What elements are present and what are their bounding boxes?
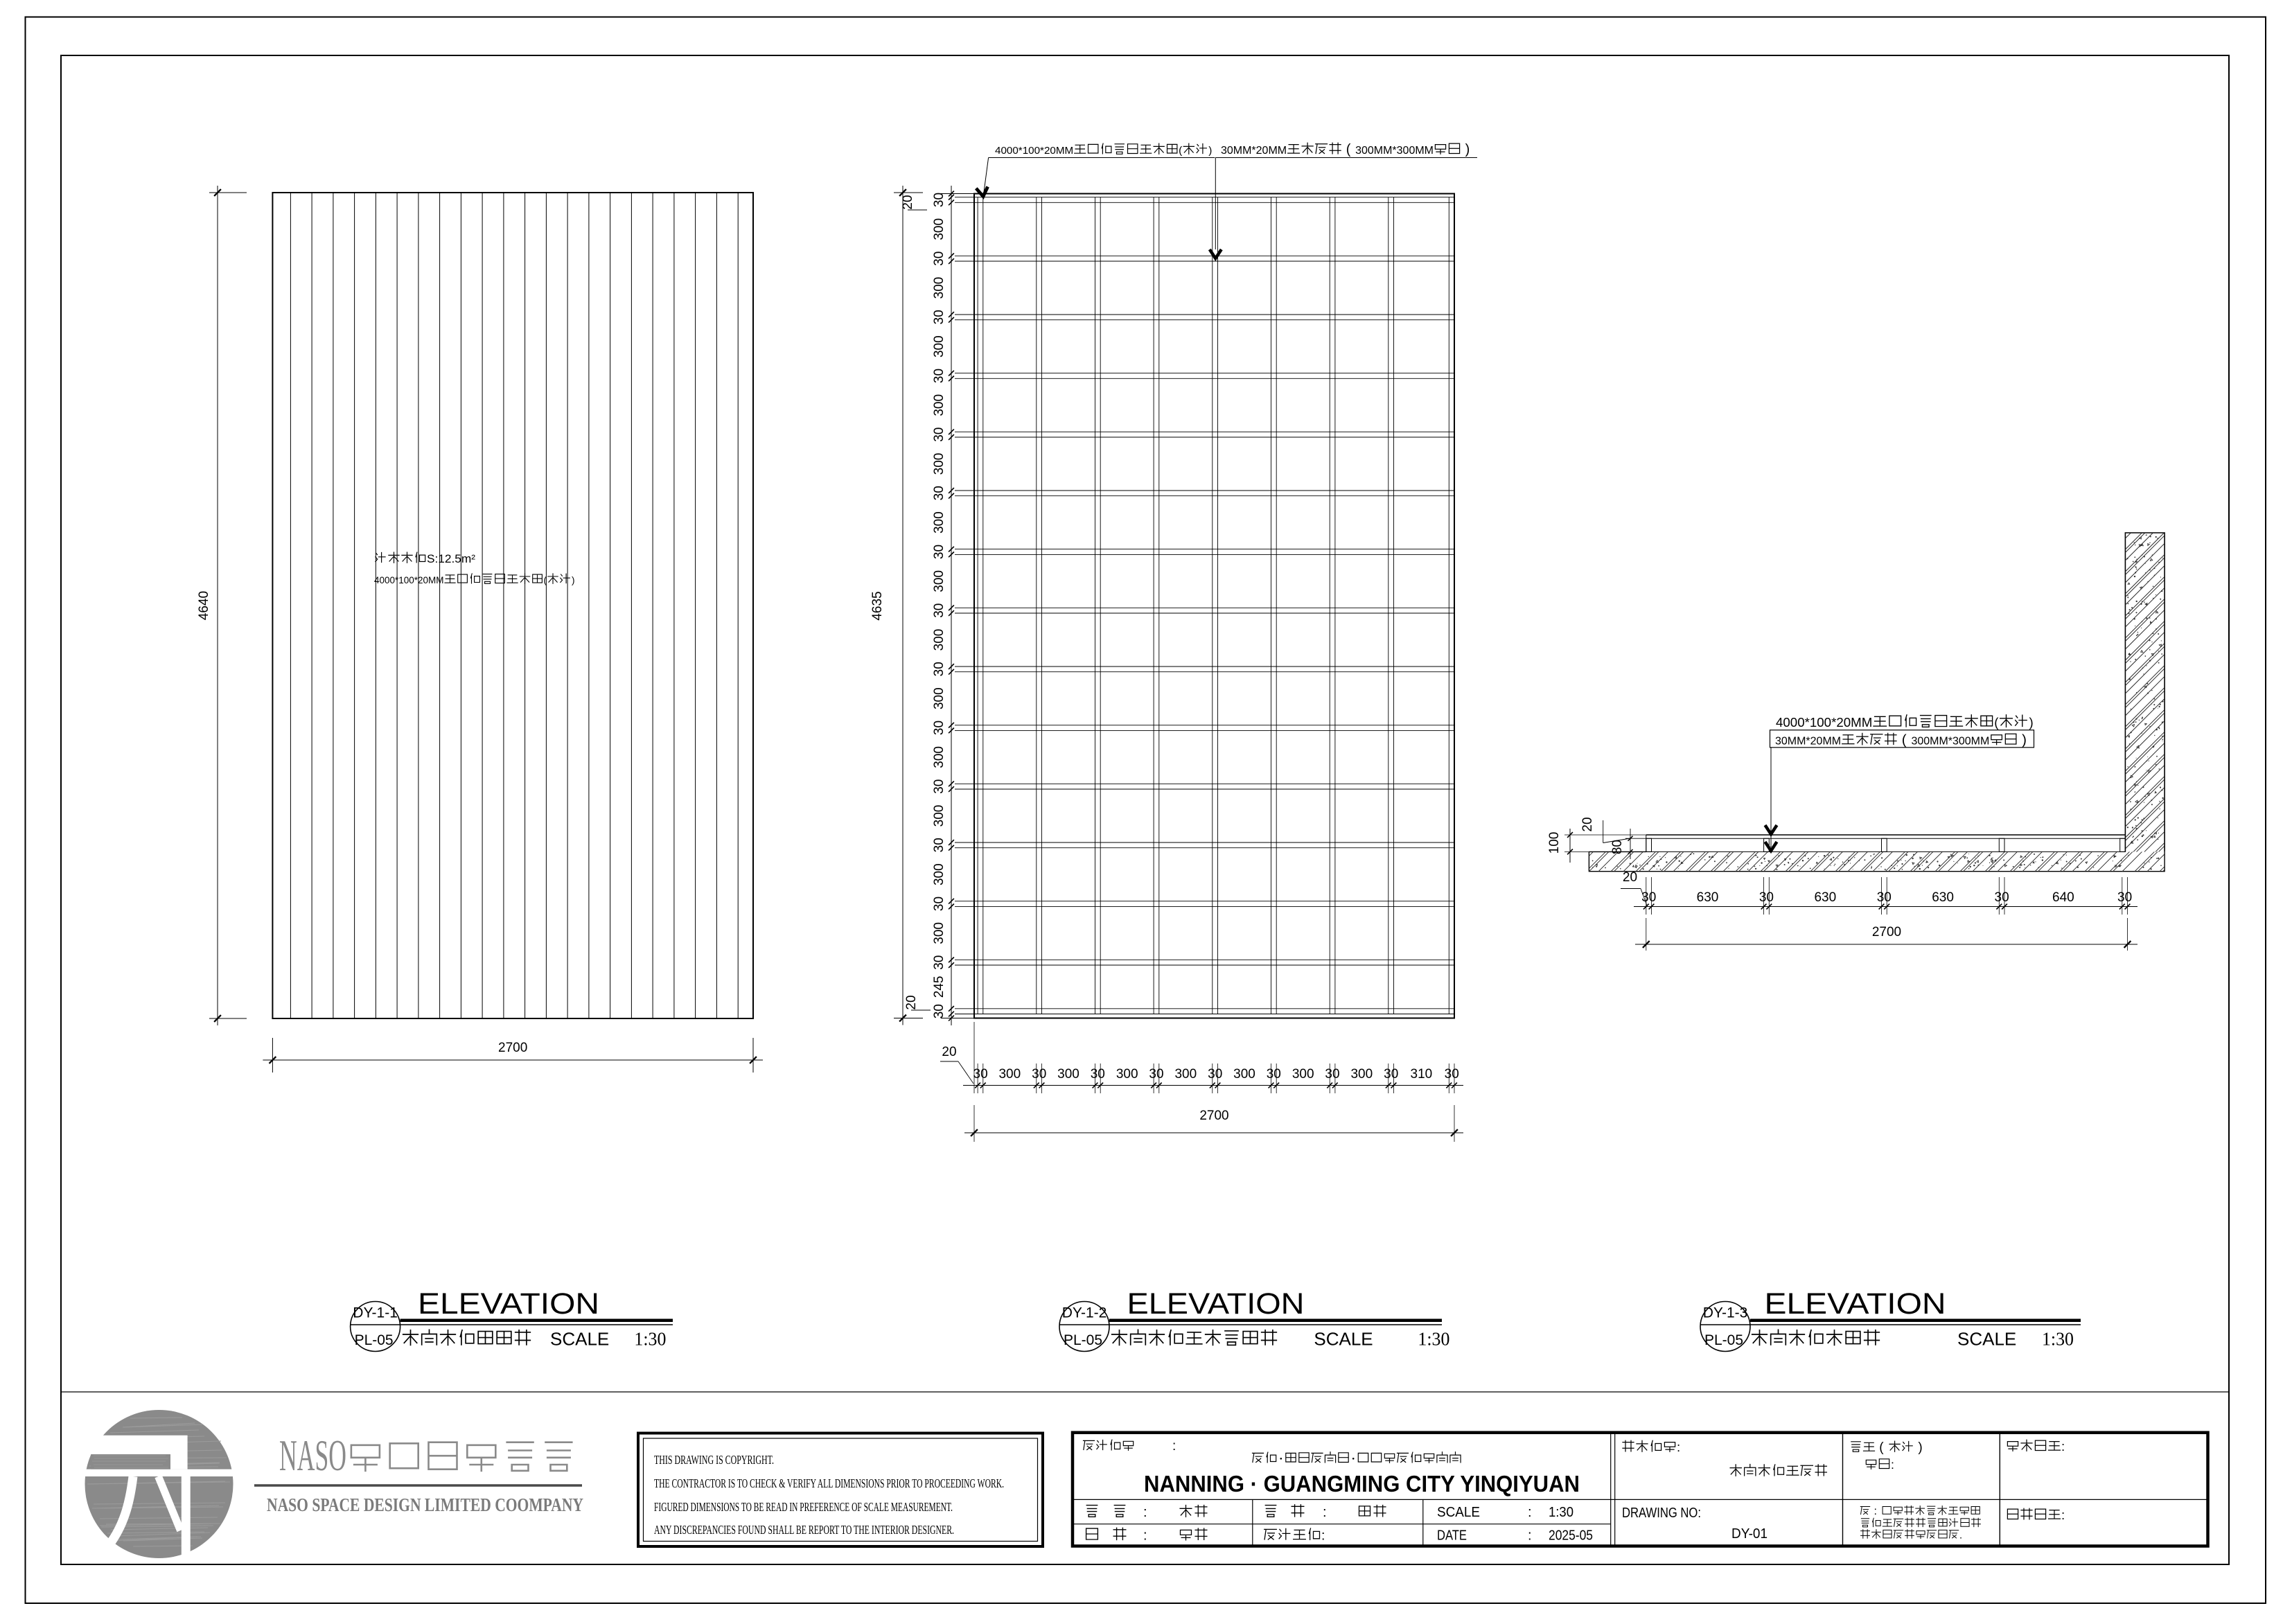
svg-text:ELEVATION: ELEVATION: [1127, 1287, 1305, 1321]
svg-text:30: 30: [1384, 1067, 1398, 1082]
svg-text:630: 630: [1697, 890, 1719, 905]
svg-text:640: 640: [2052, 890, 2074, 905]
svg-text:30: 30: [1091, 1067, 1105, 1082]
svg-text:1:30: 1:30: [634, 1329, 666, 1350]
svg-text:30: 30: [932, 955, 946, 970]
svg-text:300: 300: [932, 922, 946, 944]
svg-text:(: (: [1879, 1440, 1884, 1455]
svg-text:2700: 2700: [498, 1041, 527, 1055]
svg-text:PL-05: PL-05: [1704, 1332, 1743, 1348]
svg-text:4640: 4640: [197, 591, 211, 620]
svg-text::: :: [1528, 1505, 1532, 1520]
svg-text:(: (: [1179, 145, 1182, 157]
svg-text:): ): [2022, 732, 2027, 748]
svg-text:300: 300: [932, 629, 946, 651]
svg-text:20: 20: [942, 1045, 956, 1059]
svg-text:300: 300: [932, 394, 946, 416]
svg-text:30: 30: [932, 193, 946, 207]
svg-text:20: 20: [904, 995, 919, 1009]
svg-text:4000*100*20MM: 4000*100*20MM: [374, 575, 444, 585]
svg-text:PL-05: PL-05: [355, 1332, 394, 1348]
svg-text:300: 300: [932, 511, 946, 533]
svg-text:1:30: 1:30: [2042, 1329, 2074, 1350]
svg-text:30: 30: [1995, 890, 2009, 905]
svg-text:ELEVATION: ELEVATION: [1765, 1287, 1946, 1321]
svg-text:30: 30: [1325, 1067, 1339, 1082]
svg-text:300: 300: [932, 570, 946, 592]
svg-text:30: 30: [1149, 1067, 1163, 1082]
svg-text:80: 80: [1610, 840, 1625, 854]
svg-text:300: 300: [932, 277, 946, 299]
svg-text::: :: [1323, 1505, 1327, 1520]
svg-text::: :: [2061, 1508, 2065, 1522]
svg-text:630: 630: [1814, 890, 1836, 905]
svg-text:30: 30: [932, 779, 946, 794]
svg-text:S:12.5m²: S:12.5m²: [427, 553, 476, 565]
svg-text:(: (: [1994, 715, 1999, 730]
svg-text:30MM*20MM: 30MM*20MM: [1221, 145, 1287, 157]
svg-text:): ): [1208, 145, 1212, 157]
svg-text::: :: [1528, 1528, 1532, 1544]
svg-text:30: 30: [932, 427, 946, 442]
svg-text:ANY DISCREPANCIES FOUND SHALL: ANY DISCREPANCIES FOUND SHALL BE REPORT …: [654, 1523, 954, 1537]
svg-text::: :: [1143, 1528, 1147, 1544]
svg-text::: :: [1677, 1440, 1680, 1454]
svg-text::: :: [1143, 1505, 1147, 1520]
svg-text:30: 30: [2117, 890, 2132, 905]
svg-text:30: 30: [1877, 890, 1892, 905]
svg-text:30: 30: [932, 603, 946, 618]
svg-text:NASO SPACE DESIGN LIMITED: NASO SPACE DESIGN LIMITED COOMPANY: [267, 1494, 583, 1515]
svg-text:SCALE: SCALE: [1957, 1329, 2016, 1350]
svg-text:300: 300: [932, 687, 946, 709]
svg-text:30: 30: [932, 721, 946, 735]
svg-text:30: 30: [932, 251, 946, 266]
svg-text:1:30: 1:30: [1549, 1505, 1573, 1520]
svg-text::: :: [1321, 1528, 1325, 1544]
svg-text:DATE: DATE: [1437, 1528, 1467, 1544]
svg-text:DY-1-3: DY-1-3: [1703, 1305, 1748, 1321]
svg-text:300: 300: [1057, 1067, 1079, 1082]
svg-text:THIS DRAWING IS COPYRIGHT.: THIS DRAWING IS COPYRIGHT.: [654, 1453, 774, 1467]
svg-text:630: 630: [1932, 890, 1954, 905]
svg-text:100: 100: [1547, 832, 1562, 854]
svg-text:(: (: [1902, 732, 1907, 748]
svg-text:300MM*300MM: 300MM*300MM: [1355, 145, 1434, 157]
svg-text:.: .: [1959, 1530, 1962, 1541]
svg-text:4000*100*20MM: 4000*100*20MM: [995, 145, 1073, 157]
svg-text:): ): [2029, 715, 2034, 730]
svg-text:20: 20: [1623, 870, 1637, 885]
svg-text:300: 300: [1233, 1067, 1255, 1082]
svg-text:30: 30: [1032, 1067, 1046, 1082]
svg-text:30: 30: [932, 545, 946, 559]
svg-text:1:30: 1:30: [1418, 1329, 1449, 1350]
svg-text::: :: [2061, 1439, 2065, 1454]
svg-text:2025-05: 2025-05: [1549, 1528, 1593, 1544]
svg-text:300: 300: [998, 1067, 1021, 1082]
svg-text:PL-05: PL-05: [1064, 1332, 1102, 1348]
svg-text:): ): [572, 575, 575, 585]
svg-text:300: 300: [1292, 1067, 1314, 1082]
svg-text:30: 30: [932, 486, 946, 500]
svg-text:30: 30: [932, 897, 946, 911]
svg-text:310: 310: [1411, 1067, 1433, 1082]
svg-text:): ): [1918, 1440, 1922, 1455]
svg-text:30: 30: [1759, 890, 1774, 905]
svg-text:300: 300: [932, 335, 946, 358]
svg-text:30: 30: [973, 1067, 988, 1082]
svg-text:SCALE: SCALE: [1437, 1505, 1480, 1520]
svg-text:2700: 2700: [1872, 925, 1901, 939]
svg-text:4635: 4635: [870, 591, 885, 620]
svg-text:30: 30: [1208, 1067, 1222, 1082]
svg-text:300: 300: [932, 746, 946, 768]
svg-text:THE CONTRACTOR IS TO CHECK & V: THE CONTRACTOR IS TO CHECK & VERIFY ALL …: [654, 1476, 1004, 1490]
svg-text:30: 30: [1445, 1067, 1459, 1082]
svg-text:DRAWING NO:: DRAWING NO:: [1622, 1506, 1701, 1521]
svg-text:(: (: [544, 575, 547, 585]
svg-text::: :: [1874, 1506, 1877, 1517]
svg-text:NASO: NASO: [279, 1431, 346, 1480]
svg-text:300: 300: [932, 218, 946, 240]
svg-text:300: 300: [932, 453, 946, 475]
svg-text:DY-01: DY-01: [1731, 1526, 1768, 1542]
svg-text:30MM*20MM: 30MM*20MM: [1775, 736, 1841, 748]
svg-text::: :: [1891, 1458, 1894, 1472]
svg-text:30: 30: [1267, 1067, 1281, 1082]
svg-text:SCALE: SCALE: [550, 1329, 609, 1350]
svg-text:30: 30: [932, 369, 946, 383]
svg-text:300: 300: [1174, 1067, 1197, 1082]
svg-text:NANNING · GUANGMING CITY YINQI: NANNING · GUANGMING CITY YINQIYUAN: [1144, 1471, 1580, 1497]
svg-text:ELEVATION: ELEVATION: [418, 1287, 599, 1321]
svg-text:(: (: [1346, 142, 1351, 157]
svg-text:4000*100*20MM: 4000*100*20MM: [1776, 715, 1872, 730]
svg-text:30: 30: [932, 1004, 946, 1018]
svg-text:DY-1-2: DY-1-2: [1062, 1305, 1107, 1321]
svg-text:300: 300: [932, 805, 946, 827]
svg-text:20: 20: [1580, 817, 1595, 831]
svg-text:2700: 2700: [1199, 1109, 1228, 1123]
svg-text:): ): [1465, 142, 1470, 157]
svg-text:DY-1-1: DY-1-1: [353, 1305, 398, 1321]
svg-text:300MM*300MM: 300MM*300MM: [1912, 736, 1990, 748]
svg-text:300: 300: [1116, 1067, 1138, 1082]
svg-text:30: 30: [932, 662, 946, 676]
svg-text:245: 245: [932, 976, 946, 998]
svg-text::: :: [1172, 1439, 1176, 1454]
svg-text:30: 30: [932, 310, 946, 324]
svg-text:300: 300: [1350, 1067, 1373, 1082]
svg-text:SCALE: SCALE: [1314, 1329, 1373, 1350]
svg-text:300: 300: [932, 863, 946, 885]
svg-text:FIGURED DIMENSIONS TO BE READ: FIGURED DIMENSIONS TO BE READ IN PREFERE…: [654, 1500, 953, 1514]
svg-text:30: 30: [932, 838, 946, 852]
